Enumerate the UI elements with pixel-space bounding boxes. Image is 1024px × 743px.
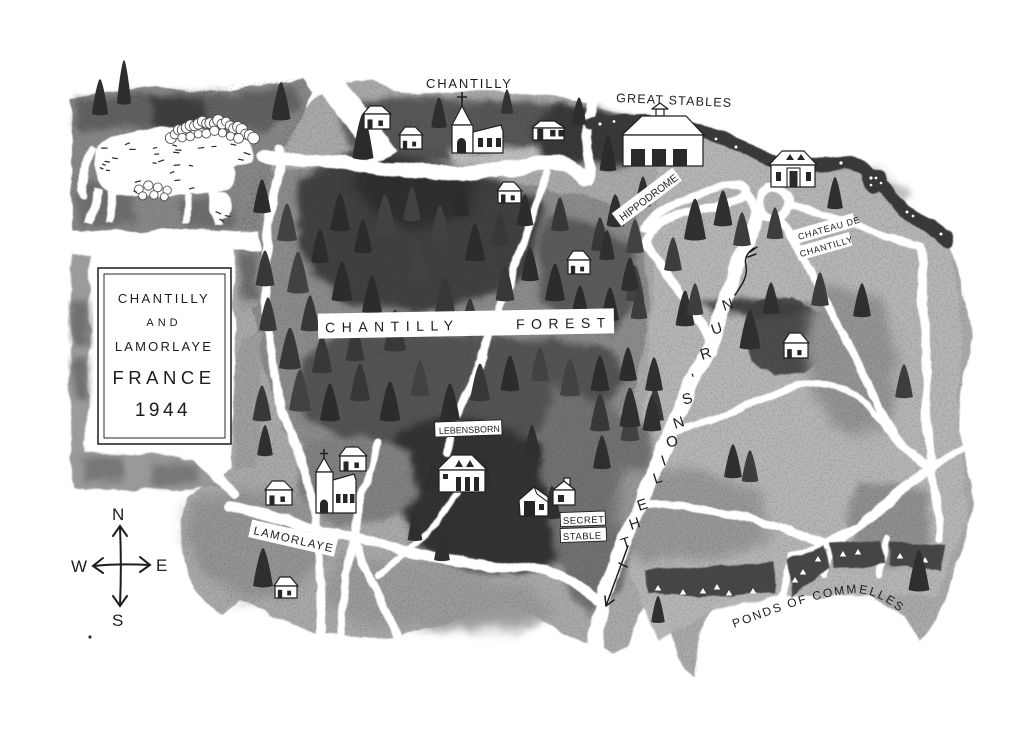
svg-text:GREAT STABLES: GREAT STABLES	[616, 91, 733, 110]
svg-text:FOREST: FOREST	[516, 314, 612, 332]
svg-text:1944: 1944	[135, 400, 191, 421]
svg-text:S: S	[112, 611, 123, 630]
svg-text:FRANCE: FRANCE	[112, 367, 215, 388]
svg-text:STABLE: STABLE	[563, 531, 602, 543]
svg-text:SECRET: SECRET	[563, 515, 605, 527]
svg-text:AND: AND	[146, 317, 181, 329]
svg-text:LAMORLAYE: LAMORLAYE	[115, 339, 213, 354]
svg-text:W: W	[71, 557, 87, 576]
svg-text:N: N	[112, 505, 124, 524]
svg-text:CHANTILLY: CHANTILLY	[426, 76, 513, 91]
svg-text:CHANTILLY: CHANTILLY	[118, 291, 210, 306]
svg-text:E: E	[156, 556, 167, 575]
svg-text:CHANTILLY: CHANTILLY	[325, 317, 460, 335]
svg-text:LEBENSBORN: LEBENSBORN	[439, 424, 500, 436]
